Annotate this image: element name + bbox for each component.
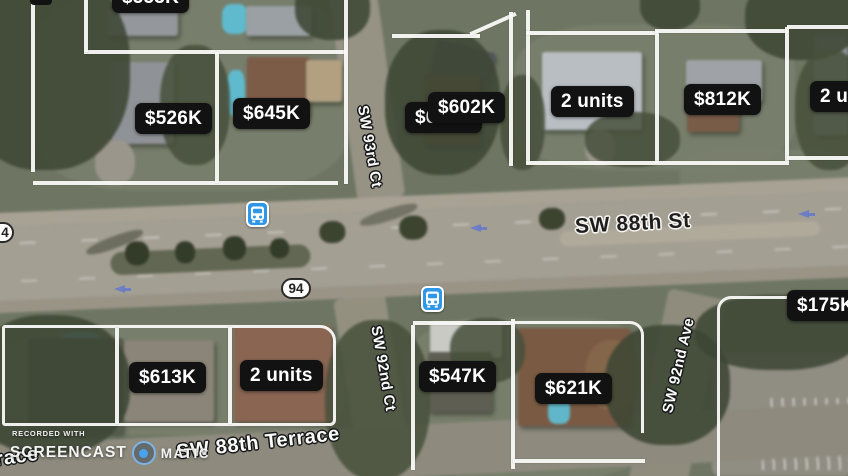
price-label[interactable]: $526K	[135, 103, 212, 134]
map-terrain-feature	[392, 34, 480, 38]
route-shield-94: 94	[281, 278, 311, 299]
map-viewport[interactable]: 94 4 SW 88th St SW 88th Terrace Terrace …	[0, 0, 848, 476]
map-terrain-feature	[434, 300, 437, 303]
watermark-brand-screencast: SCREENCAST	[10, 444, 127, 462]
watermark-brand-matic: MATIC	[161, 446, 210, 461]
lane-direction-arrow	[798, 210, 809, 218]
units-label[interactable]: 2 units	[810, 81, 848, 112]
price-label[interactable]: $645K	[233, 98, 310, 129]
map-terrain-feature	[435, 305, 438, 307]
map-terrain-feature: SCREENCAST MATIC	[10, 441, 210, 465]
route-shield-label: 4	[1, 225, 9, 240]
map-terrain-feature	[33, 181, 338, 185]
map-terrain-feature	[344, 0, 348, 184]
map-terrain-feature	[260, 220, 263, 222]
map-terrain-feature	[411, 325, 415, 470]
watermark: RECORDED WITH SCREENCAST MATIC	[10, 429, 230, 473]
price-label[interactable]: $613K	[129, 362, 206, 393]
map-terrain-feature	[655, 29, 787, 33]
map-terrain-feature	[785, 27, 789, 161]
price-label-fragment[interactable]	[30, 0, 52, 5]
map-terrain-feature	[428, 293, 437, 297]
map-terrain-feature	[31, 0, 35, 172]
map-terrain-feature	[228, 327, 232, 424]
map-terrain-feature	[251, 206, 264, 220]
map-terrain-feature	[787, 156, 848, 160]
map-terrain-feature	[115, 328, 119, 424]
price-label[interactable]: $175K	[787, 290, 848, 321]
map-terrain-feature	[253, 215, 256, 218]
price-label[interactable]: $602K	[428, 92, 505, 123]
map-terrain-feature	[253, 208, 262, 212]
map-terrain-feature	[413, 321, 513, 325]
lane-direction-arrow	[470, 224, 481, 232]
units-label[interactable]: 2 units	[551, 86, 634, 117]
lane-direction-arrow	[114, 285, 125, 293]
watermark-recorded-with: RECORDED WITH	[12, 429, 85, 438]
map-terrain-feature	[215, 52, 219, 183]
map-terrain-feature	[717, 296, 848, 476]
map-terrain-feature	[84, 0, 88, 52]
map-terrain-feature	[509, 12, 513, 166]
map-terrain-feature	[655, 31, 659, 163]
map-terrain-feature	[259, 215, 262, 218]
map-terrain-feature	[526, 161, 789, 165]
map-terrain-feature	[513, 459, 645, 463]
bus-stop-icon[interactable]	[246, 201, 269, 227]
bus-stop-icon[interactable]	[421, 286, 444, 312]
map-terrain-feature	[139, 449, 148, 458]
price-label[interactable]: $547K	[419, 361, 496, 392]
map-terrain-feature	[526, 31, 658, 35]
price-label[interactable]: $812K	[684, 84, 761, 115]
price-label[interactable]: $553K	[112, 0, 189, 13]
map-terrain-feature	[428, 300, 431, 303]
map-terrain-feature	[787, 25, 848, 29]
route-shield-label: 94	[288, 281, 303, 296]
price-label[interactable]: $621K	[535, 373, 612, 404]
map-terrain-feature	[252, 220, 255, 222]
bus-icon	[425, 291, 440, 308]
map-terrain-feature	[427, 305, 430, 307]
parcel-boundaries	[0, 0, 848, 476]
bus-icon	[250, 206, 265, 223]
o-matic-circle-icon	[132, 441, 156, 465]
units-label[interactable]: 2 units	[240, 360, 323, 391]
map-terrain-feature	[426, 291, 439, 305]
